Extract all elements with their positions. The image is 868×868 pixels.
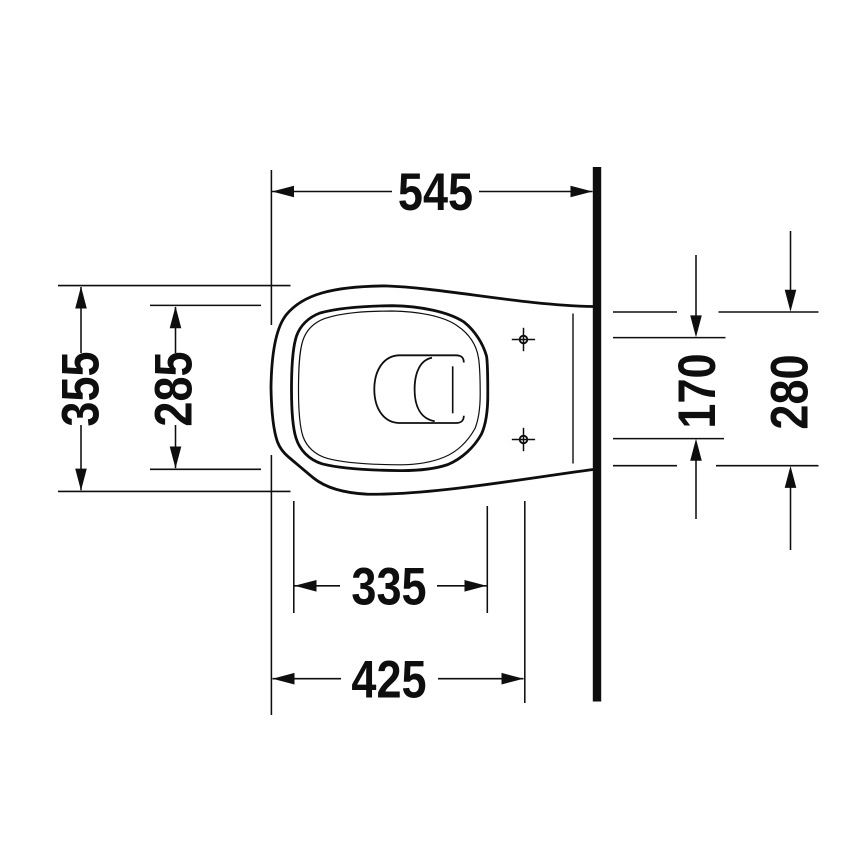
- svg-text:335: 335: [351, 557, 426, 616]
- svg-text:425: 425: [351, 650, 426, 709]
- svg-text:355: 355: [51, 351, 110, 426]
- svg-text:285: 285: [144, 351, 203, 426]
- svg-text:545: 545: [398, 163, 473, 222]
- svg-text:170: 170: [668, 353, 727, 428]
- svg-text:280: 280: [760, 354, 819, 429]
